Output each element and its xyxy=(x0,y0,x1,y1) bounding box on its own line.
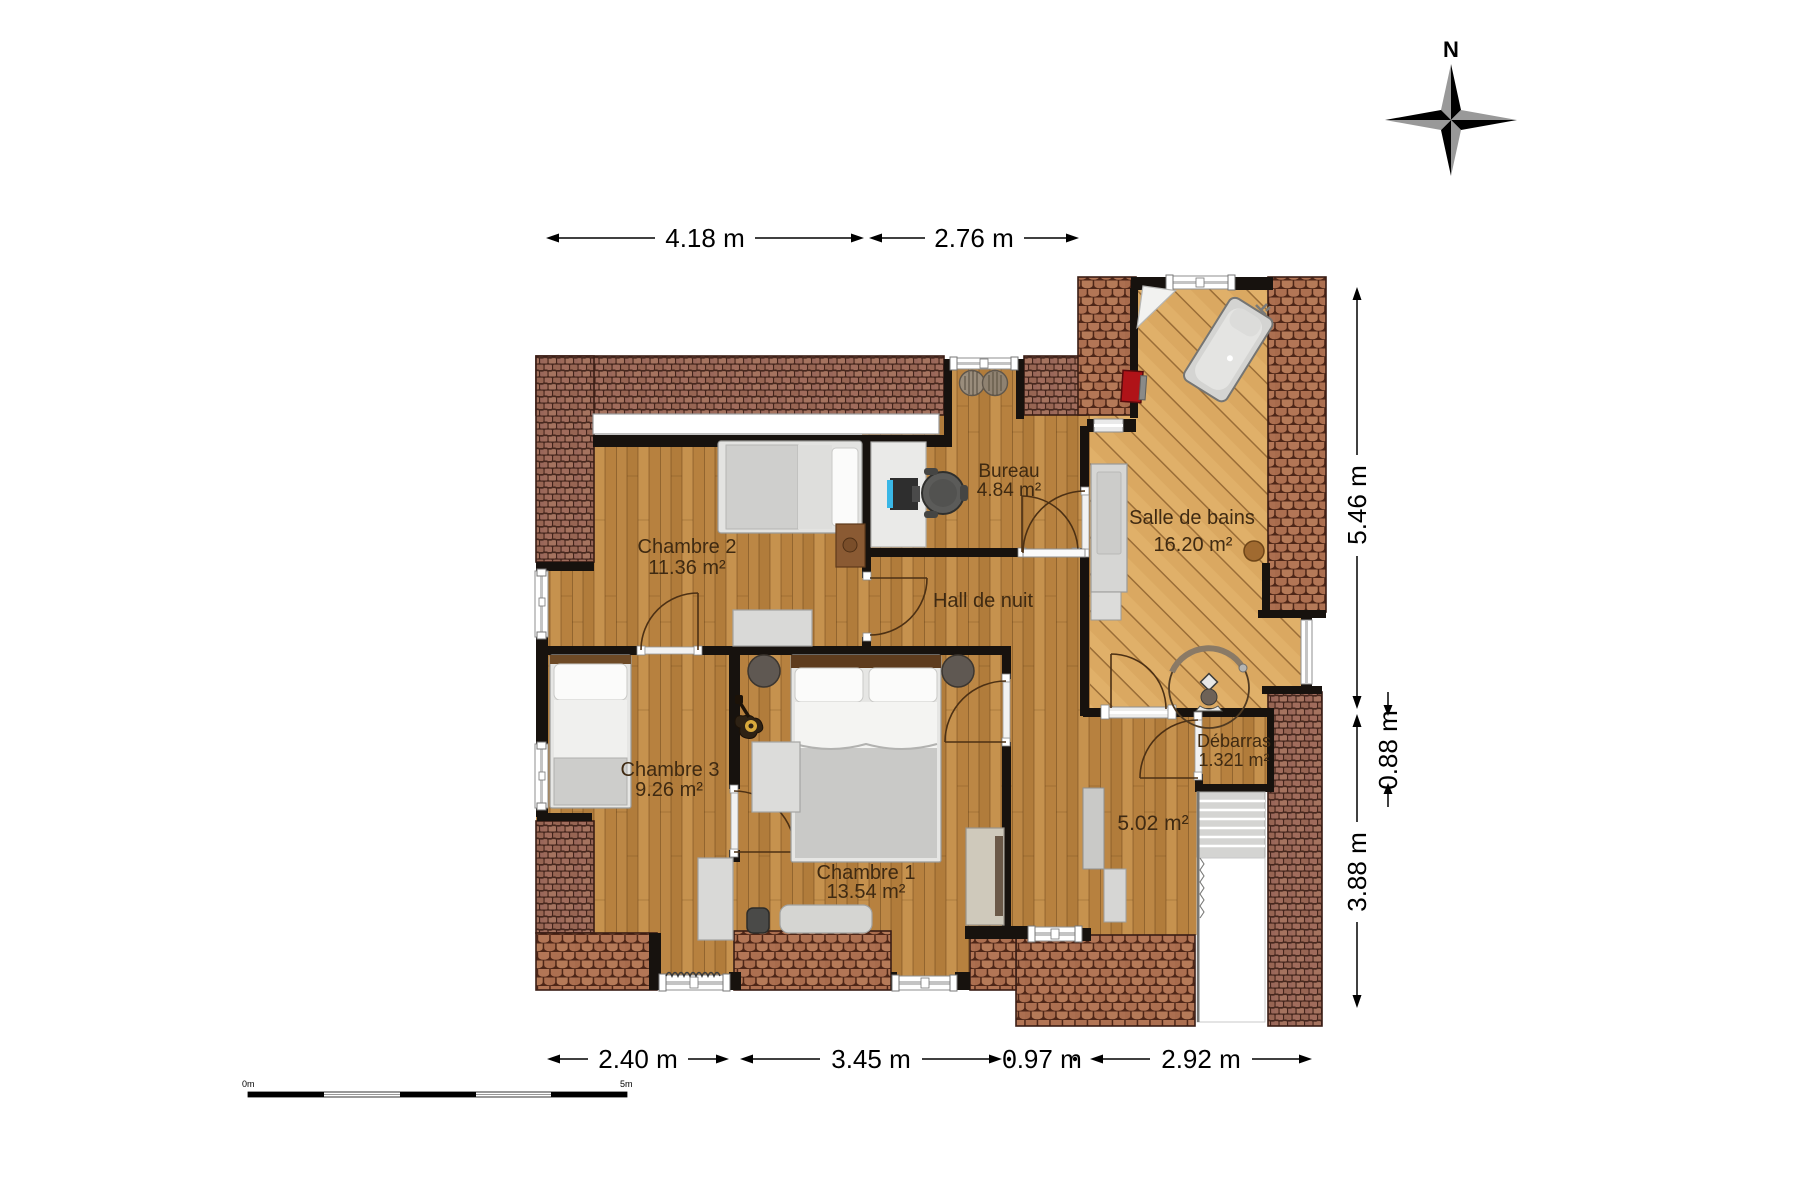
svg-text:Salle de bains: Salle de bains xyxy=(1129,507,1255,529)
svg-text:0.97 m: 0.97 m xyxy=(1002,1044,1082,1074)
svg-text:N: N xyxy=(1443,37,1459,62)
svg-text:Chambre 2: Chambre 2 xyxy=(638,536,737,558)
svg-text:4.84 m²: 4.84 m² xyxy=(977,480,1041,501)
svg-text:9.26 m²: 9.26 m² xyxy=(635,779,703,801)
svg-text:2.40 m: 2.40 m xyxy=(598,1044,678,1074)
svg-text:1.321 m²: 1.321 m² xyxy=(1198,750,1269,770)
svg-text:Bureau: Bureau xyxy=(978,461,1039,482)
svg-text:5.46 m: 5.46 m xyxy=(1342,465,1372,545)
svg-text:11.36 m²: 11.36 m² xyxy=(648,557,726,579)
svg-text:Hall de nuit: Hall de nuit xyxy=(933,590,1034,612)
svg-text:16.20 m²: 16.20 m² xyxy=(1154,534,1233,556)
svg-text:5m: 5m xyxy=(620,1079,633,1089)
svg-text:0.88 m: 0.88 m xyxy=(1373,710,1403,790)
svg-text:5.02 m²: 5.02 m² xyxy=(1117,812,1188,835)
svg-text:2.76 m: 2.76 m xyxy=(934,223,1014,253)
svg-text:4.18 m: 4.18 m xyxy=(665,223,745,253)
svg-text:Débarras: Débarras xyxy=(1197,731,1271,751)
svg-text:3.45 m: 3.45 m xyxy=(831,1044,911,1074)
svg-text:3.88 m: 3.88 m xyxy=(1342,832,1372,912)
svg-text:2.92 m: 2.92 m xyxy=(1161,1044,1241,1074)
svg-text:13.54 m²: 13.54 m² xyxy=(827,881,906,903)
svg-text:0m: 0m xyxy=(242,1079,255,1089)
svg-text:Chambre 3: Chambre 3 xyxy=(621,759,720,781)
